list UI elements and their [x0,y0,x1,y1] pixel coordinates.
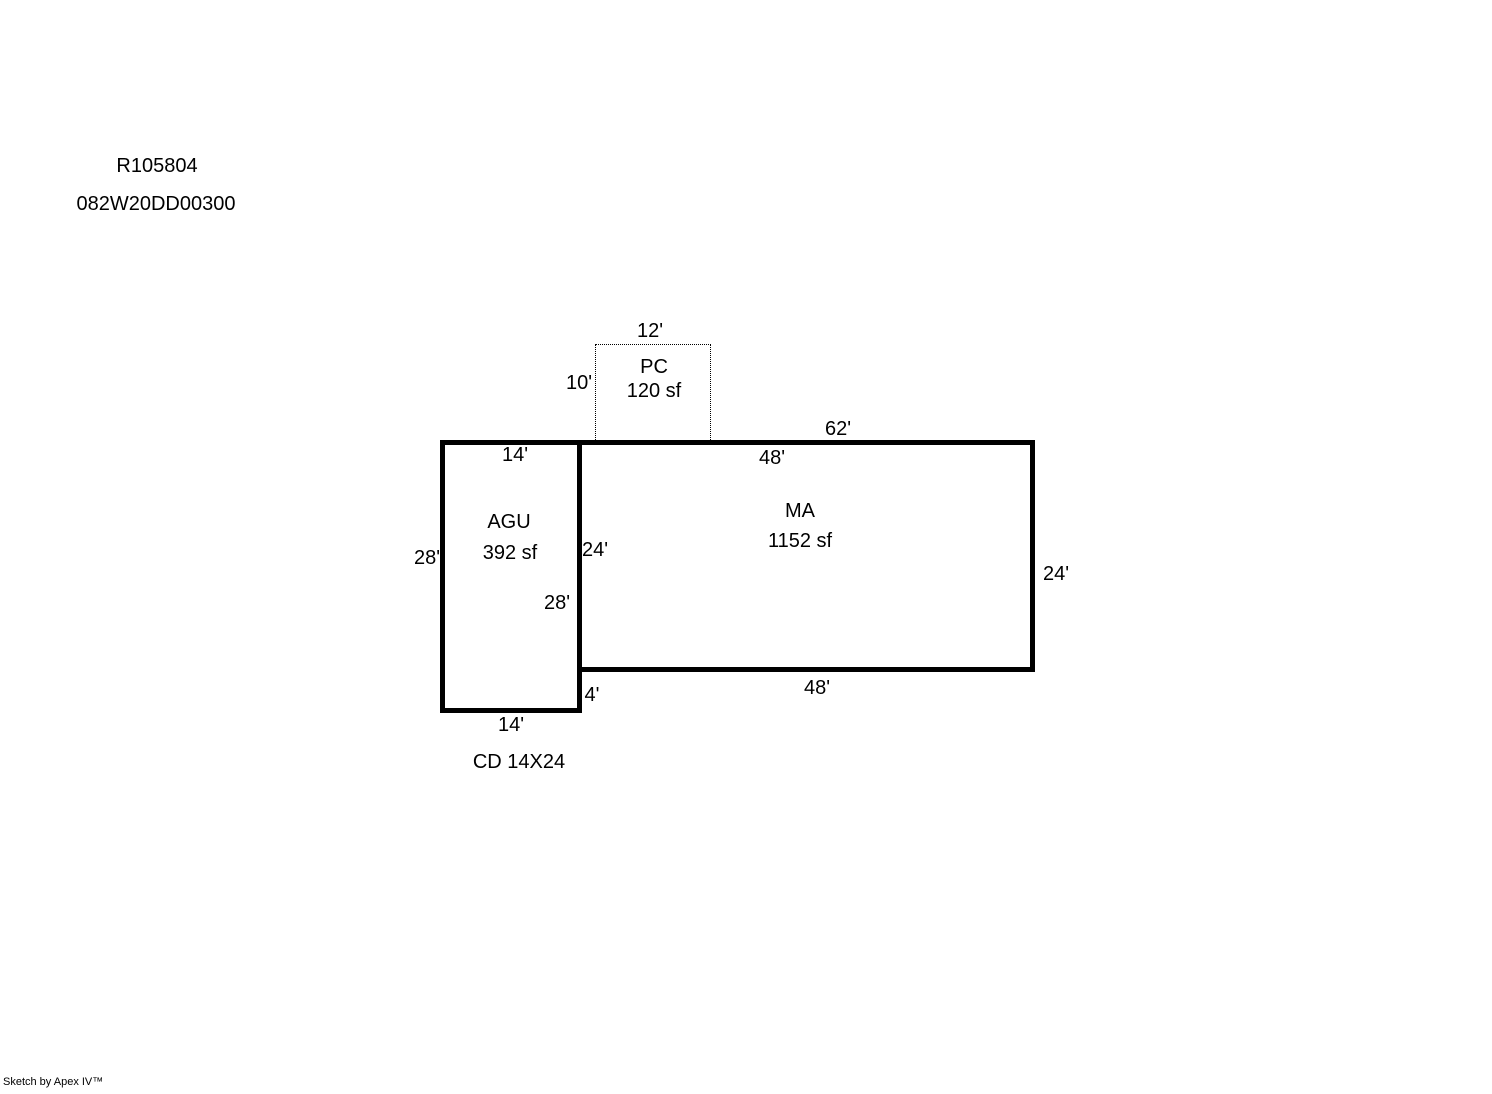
agu-top-dim: 14' [502,444,528,466]
pc-area-size: 120 sf [627,380,681,402]
pc-area-code: PC [640,356,668,378]
agu-area-size: 392 sf [483,542,537,564]
ma-outline [577,440,1035,672]
record-id: R105804 [116,155,197,177]
parcel-id: 082W20DD00300 [77,193,236,215]
ma-area-code: MA [785,500,815,522]
agu-right-dim: 28' [544,592,570,614]
agu-bottom-dim: 14' [498,714,524,736]
agu-area-code: AGU [487,511,530,533]
cd-note: CD 14X24 [473,751,565,773]
apex-credit: Sketch by Apex IV™ [3,1076,103,1089]
ma-bottom-dim: 48' [804,677,830,699]
pc-top-dim: 12' [637,320,663,342]
ma-top-dim: 48' [759,447,785,469]
sketch-page: { "header": { "record_id": "R105804", "p… [0,0,1492,1094]
agu-outline [440,440,582,713]
ma-right-dim: 24' [1043,563,1069,585]
agu-left-dim: 28' [414,547,440,569]
offset-dim: 4' [585,684,600,706]
ma-left-dim: 24' [582,539,608,561]
pc-left-dim: 10' [566,372,592,394]
ma-area-size: 1152 sf [768,530,832,552]
top-total-dim: 62' [825,418,851,440]
